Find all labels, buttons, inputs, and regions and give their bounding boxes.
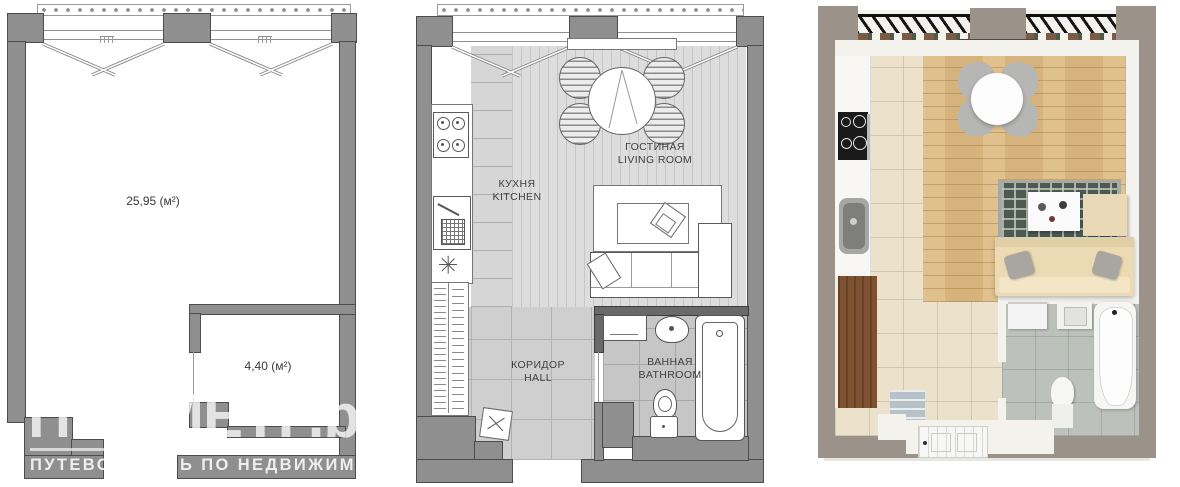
wall-bottom [178,456,355,478]
wall-pier [417,17,452,46]
flush-dot [662,425,665,428]
sofa-seat-edge [999,277,1130,293]
room-label-kitchen: КУХНЯ KITCHEN [472,178,562,204]
pendant-cord [589,68,655,134]
drain [850,218,857,225]
room-label-hall: КОРИДОР HALL [488,359,588,385]
label-en: KITCHEN [472,191,562,204]
wall-pier [970,8,1026,41]
toilet-tank [650,416,678,438]
washing-machine [1008,302,1047,329]
dining-table [588,67,656,135]
hangers [452,287,464,409]
wall-pier [332,14,356,42]
area-label-small: 4,40 (м²) [208,359,328,373]
hangers [434,287,446,409]
side-cabinet [1083,194,1127,236]
stove-icon [433,112,469,158]
toilet-icon [653,389,677,419]
sofa [995,237,1134,296]
sink-grate [441,219,465,245]
wall-smallroom-corner [190,403,228,427]
steel-sink [839,198,869,254]
door-panel [931,433,951,452]
wall-left [417,46,431,417]
door-leaf [193,352,194,403]
washer-line [610,334,638,335]
bathtub [1094,302,1136,409]
wardrobe [838,276,877,408]
burner [452,139,465,152]
sink-icon [433,196,471,250]
washing-machine-icon [603,315,647,341]
render-shadow [824,458,1150,461]
wall-corner [1116,6,1156,40]
wall-bathroom-left-lower [595,403,603,460]
symbol-star-icon [439,256,457,274]
sofa-side-unit [698,223,732,298]
burner [853,136,867,150]
coffee-table [1028,192,1080,231]
wall-right [748,46,763,482]
seat-line [631,253,632,287]
faucet-dot [669,326,674,331]
bath-sink [1057,302,1092,329]
wall-bathroom-left [595,315,603,352]
window-sill-table [567,38,677,50]
label-ru: ВАННАЯ [620,356,720,369]
seat-line [671,253,672,287]
label-en: HALL [488,372,588,385]
room-label-bathroom: ВАННАЯ BATHROOM [620,356,720,382]
door-leaf [598,352,599,403]
label-en: BATHROOM [620,369,720,382]
wall-right [340,42,355,478]
label-ru: КОРИДОР [488,359,588,372]
wardrobe [431,282,469,416]
bath-sink-icon [655,316,689,343]
table-item [1038,203,1046,211]
wall-bathroom-top [595,307,748,315]
wall-pier [164,14,210,42]
dining-table [971,73,1023,125]
door-panel [957,433,977,452]
table-item [1059,201,1067,209]
sofa-back [995,237,1134,247]
wall-left [8,42,25,422]
burner [853,115,866,128]
wall-left [818,40,835,454]
cooktop [838,112,868,160]
burner [452,117,465,130]
entry-step [878,414,906,440]
faucet [438,203,460,216]
burner [841,138,852,149]
toilet-bowl [658,396,672,412]
toilet-base [1052,404,1073,428]
pillow [1091,250,1123,280]
burner [841,117,851,127]
wall-pier [737,17,763,46]
burner [437,117,450,130]
wall-bottom [417,460,512,482]
burner [437,139,450,152]
wall-smallroom-top [190,305,355,314]
oven-handle [867,114,870,160]
wall-bathroom-jut [603,403,633,447]
door-swing-lines [37,42,337,80]
toilet [1051,377,1074,407]
wall-pier [8,14,43,42]
wall-smallroom-left [190,314,200,352]
table-item [1049,216,1055,222]
wall-bathroom-left [998,304,1006,362]
balcony-railing [437,4,744,16]
drain-dot [716,330,723,337]
faucet-dot [1112,310,1117,315]
floorplan-collage: 25,95 (м²) 4,40 (м²) [0,0,1180,487]
room-label-living: ГОСТИНАЯ LIVING ROOM [595,141,715,167]
plan-2d-schematic: 25,95 (м²) 4,40 (м²) [8,4,356,480]
sink-basin [1064,307,1087,326]
wall-bottom [582,460,763,482]
tub-basin [1099,307,1133,406]
hall-stool [479,407,513,441]
area-label-main: 25,95 (м²) [93,194,213,208]
label-ru: КУХНЯ [472,178,562,191]
floor-tiles-kitchen [471,46,512,307]
label-ru: ГОСТИНАЯ [595,141,715,154]
wall-smallroom-bottom [228,427,345,437]
wall-bottom [25,456,103,478]
wall-step [25,418,72,460]
balcony-railing [856,14,972,33]
wall-right [1139,40,1156,454]
wall-corner [818,6,858,40]
pillow [1003,250,1035,280]
sink-basin [843,203,865,249]
entry-door [918,426,988,458]
wardrobe-rail [448,283,449,413]
plan-2d-furnished: КУХНЯ KITCHEN ГОСТИНАЯ LIVING ROOM КОРИД… [417,4,763,482]
plan-3d-render [818,6,1156,468]
label-en: LIVING ROOM [595,154,715,167]
door-handle [923,441,927,445]
pillow [587,252,622,289]
